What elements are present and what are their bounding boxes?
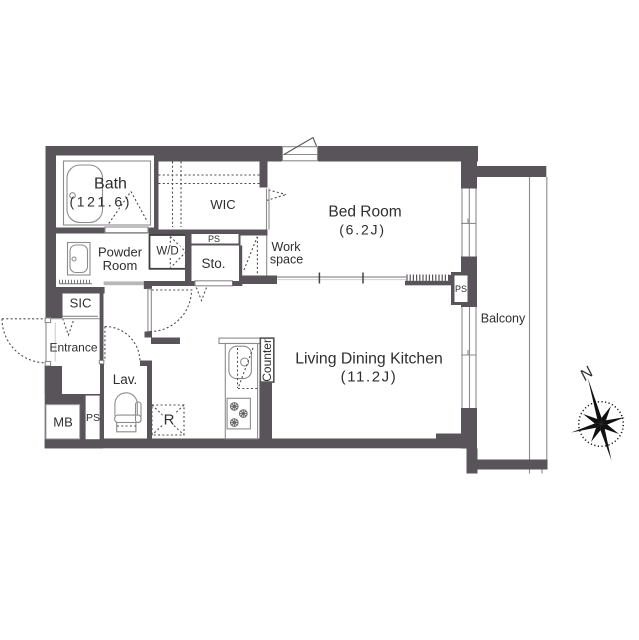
svg-text:(121.6): (121.6) bbox=[70, 194, 133, 210]
svg-text:R: R bbox=[164, 412, 175, 429]
svg-text:PS: PS bbox=[86, 412, 100, 424]
svg-text:space: space bbox=[270, 253, 303, 267]
svg-text:Bed Room: Bed Room bbox=[328, 204, 401, 221]
svg-text:Living Dining Kitchen: Living Dining Kitchen bbox=[295, 351, 443, 368]
svg-text:Lav.: Lav. bbox=[113, 372, 138, 387]
svg-text:W/D: W/D bbox=[156, 246, 178, 258]
svg-text:WIC: WIC bbox=[210, 197, 235, 212]
svg-text:MB: MB bbox=[53, 415, 73, 430]
svg-text:Balcony: Balcony bbox=[481, 312, 526, 326]
svg-text:SIC: SIC bbox=[70, 296, 92, 311]
svg-text:Room: Room bbox=[103, 258, 138, 273]
svg-text:(6.2J): (6.2J) bbox=[339, 222, 386, 238]
svg-text:PS: PS bbox=[208, 234, 220, 244]
svg-text:PS: PS bbox=[455, 284, 467, 294]
svg-text:Counter: Counter bbox=[260, 339, 274, 382]
svg-text:(11.2J): (11.2J) bbox=[341, 369, 398, 386]
svg-text:Bath: Bath bbox=[94, 176, 127, 193]
svg-text:Sto.: Sto. bbox=[201, 256, 225, 271]
svg-text:Entrance: Entrance bbox=[49, 341, 97, 355]
